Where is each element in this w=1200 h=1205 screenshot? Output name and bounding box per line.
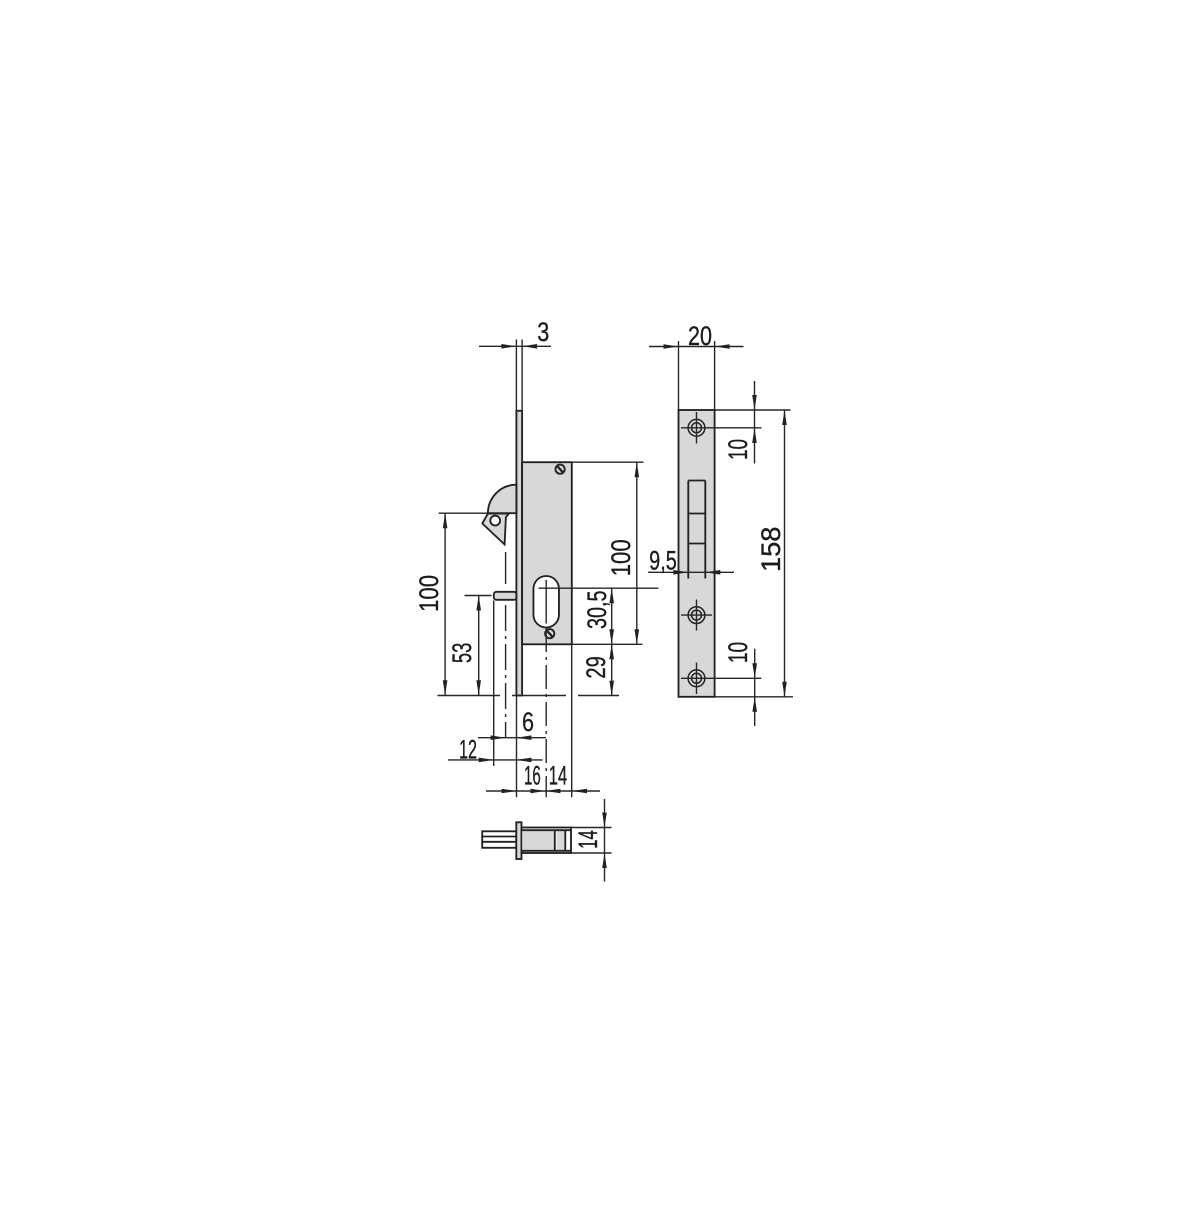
svg-text:3: 3 — [537, 318, 549, 348]
svg-text:10: 10 — [724, 642, 754, 663]
svg-text:14: 14 — [549, 761, 567, 791]
svg-text:158: 158 — [757, 527, 787, 573]
svg-text:10: 10 — [724, 439, 754, 460]
svg-text:14: 14 — [574, 830, 604, 848]
svg-text:29: 29 — [582, 656, 612, 678]
svg-text:30,5: 30,5 — [583, 591, 613, 629]
svg-text:12: 12 — [459, 735, 477, 765]
svg-text:6: 6 — [522, 708, 534, 738]
svg-text:100: 100 — [415, 575, 445, 612]
svg-text:53: 53 — [448, 643, 478, 663]
svg-text:20: 20 — [688, 322, 712, 352]
svg-text:100: 100 — [607, 539, 637, 576]
svg-text:9,5: 9,5 — [649, 546, 677, 576]
svg-text:16: 16 — [524, 761, 541, 791]
